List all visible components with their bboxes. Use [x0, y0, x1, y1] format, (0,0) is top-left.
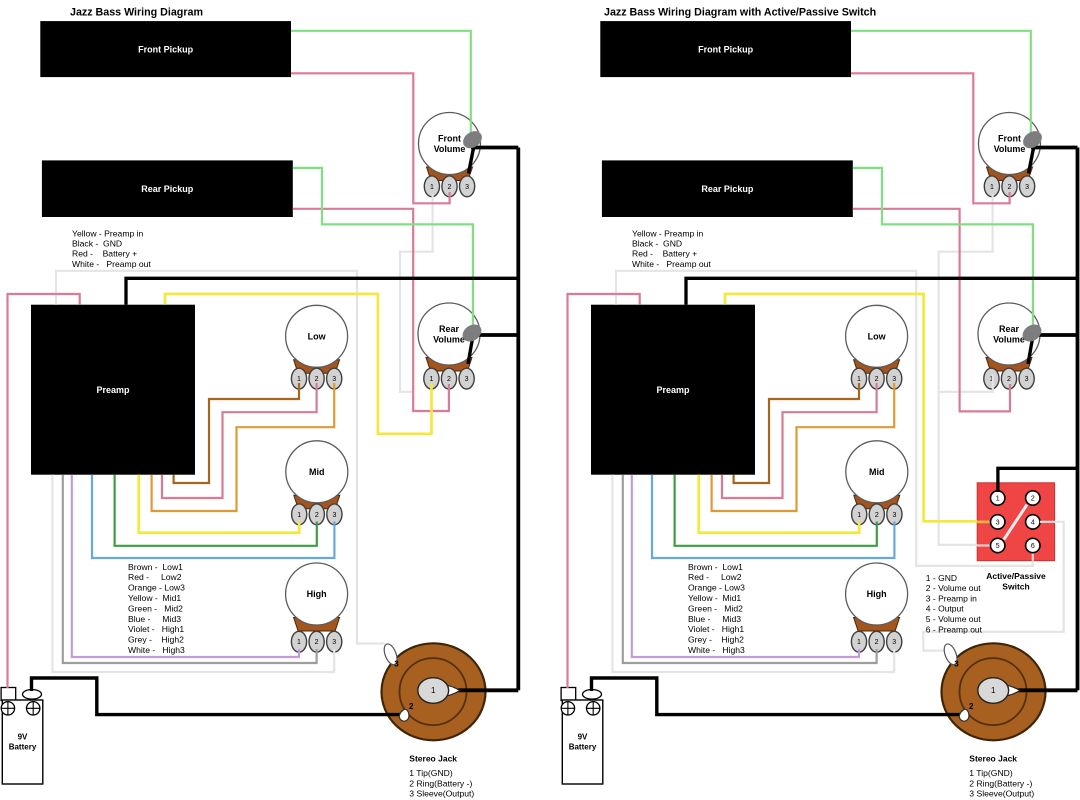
svg-text:1: 1	[431, 686, 436, 695]
svg-text:3: 3	[332, 639, 336, 646]
svg-text:Green - Mid2: Green - Mid2	[128, 603, 183, 613]
svg-text:1: 1	[430, 184, 434, 191]
svg-text:3: 3	[954, 660, 959, 669]
svg-text:Black - GND: Black - GND	[72, 239, 122, 249]
svg-text:Yellow - Mid1: Yellow - Mid1	[128, 593, 181, 603]
svg-text:9V: 9V	[18, 732, 28, 741]
svg-text:2: 2	[448, 184, 452, 191]
svg-text:Stereo Jack: Stereo Jack	[409, 753, 457, 763]
svg-text:2: 2	[315, 376, 319, 383]
svg-text:White - Preamp out: White - Preamp out	[632, 259, 711, 269]
svg-text:3: 3	[465, 376, 469, 383]
svg-text:Red - Battery +: Red - Battery +	[72, 249, 137, 259]
svg-text:Red - Low2: Red - Low2	[688, 572, 742, 582]
svg-text:Green - Mid2: Green - Mid2	[688, 603, 743, 613]
svg-text:3: 3	[892, 376, 896, 383]
svg-text:3: 3	[394, 660, 399, 669]
svg-text:Preamp: Preamp	[656, 385, 690, 395]
svg-text:3: 3	[465, 184, 469, 191]
svg-text:Mid: Mid	[869, 467, 885, 477]
svg-text:Yellow - Mid1: Yellow - Mid1	[688, 593, 741, 603]
svg-text:White - Preamp out: White - Preamp out	[72, 259, 151, 269]
svg-text:Low: Low	[308, 332, 327, 342]
svg-text:3 Sleeve(Output): 3 Sleeve(Output)	[969, 788, 1034, 798]
svg-text:Yellow - Preamp in: Yellow - Preamp in	[72, 228, 144, 238]
svg-text:1: 1	[857, 639, 861, 646]
svg-text:Orange - Low3: Orange - Low3	[688, 583, 745, 593]
svg-text:Switch: Switch	[1002, 582, 1029, 592]
svg-text:2: 2	[447, 376, 451, 383]
svg-text:Brown - Low1: Brown - Low1	[128, 562, 183, 572]
svg-text:1: 1	[297, 376, 301, 383]
svg-text:Rear Pickup: Rear Pickup	[141, 184, 194, 194]
svg-text:Front Pickup: Front Pickup	[138, 44, 194, 54]
svg-text:Mid: Mid	[309, 467, 325, 477]
svg-text:Rear: Rear	[999, 324, 1020, 334]
svg-text:1: 1	[990, 184, 994, 191]
svg-text:2 - Volume out: 2 - Volume out	[926, 583, 981, 593]
svg-text:9V: 9V	[578, 732, 588, 741]
svg-text:White - High3: White - High3	[688, 645, 745, 655]
svg-text:2 Ring(Battery -): 2 Ring(Battery -)	[409, 778, 472, 788]
svg-text:Volume: Volume	[993, 334, 1025, 344]
svg-text:Blue - Mid3: Blue - Mid3	[128, 614, 181, 624]
svg-text:Stereo Jack: Stereo Jack	[969, 753, 1017, 763]
svg-text:2: 2	[875, 376, 879, 383]
svg-text:Violet - High1: Violet - High1	[128, 624, 184, 634]
svg-text:3: 3	[1025, 376, 1029, 383]
svg-text:Rear Pickup: Rear Pickup	[701, 184, 754, 194]
svg-text:3 Sleeve(Output): 3 Sleeve(Output)	[409, 788, 474, 798]
svg-text:Volume: Volume	[433, 334, 465, 344]
svg-text:Blue - Mid3: Blue - Mid3	[688, 614, 741, 624]
svg-text:Front: Front	[998, 133, 1021, 143]
svg-text:6 - Preamp out: 6 - Preamp out	[926, 624, 983, 634]
svg-text:3: 3	[332, 376, 336, 383]
svg-text:1 Tip(GND): 1 Tip(GND)	[409, 768, 453, 778]
svg-text:1: 1	[857, 512, 861, 519]
svg-text:Low: Low	[868, 332, 887, 342]
svg-text:White - High3: White - High3	[128, 645, 185, 655]
svg-text:2: 2	[1008, 184, 1012, 191]
svg-text:Violet - High1: Violet - High1	[688, 624, 744, 634]
svg-text:1: 1	[991, 686, 996, 695]
svg-text:3: 3	[892, 512, 896, 519]
svg-text:Active/Passive: Active/Passive	[986, 571, 1046, 581]
svg-text:1: 1	[996, 496, 1000, 503]
svg-text:3 - Preamp in: 3 - Preamp in	[926, 593, 977, 603]
svg-text:Red - Low2: Red - Low2	[128, 572, 182, 582]
svg-text:2: 2	[315, 512, 319, 519]
svg-text:Preamp: Preamp	[96, 385, 130, 395]
svg-text:Brown - Low1: Brown - Low1	[688, 562, 743, 572]
svg-text:Jazz Bass Wiring Diagram: Jazz Bass Wiring Diagram	[70, 7, 203, 19]
svg-text:2: 2	[315, 639, 319, 646]
svg-text:6: 6	[1031, 543, 1035, 550]
svg-text:Grey - High2: Grey - High2	[128, 635, 184, 645]
svg-text:2: 2	[409, 702, 414, 711]
svg-text:Rear: Rear	[439, 324, 460, 334]
svg-text:1: 1	[297, 512, 301, 519]
svg-text:1: 1	[297, 639, 301, 646]
svg-text:Battery: Battery	[569, 743, 597, 752]
svg-text:3: 3	[996, 520, 1000, 527]
svg-text:2: 2	[875, 639, 879, 646]
svg-text:1 - GND: 1 - GND	[926, 573, 957, 583]
svg-text:Jazz Bass Wiring Diagram with: Jazz Bass Wiring Diagram with Active/Pas…	[604, 7, 876, 19]
svg-text:3: 3	[892, 639, 896, 646]
svg-text:3: 3	[1025, 184, 1029, 191]
svg-text:Yellow - Preamp in: Yellow - Preamp in	[632, 228, 704, 238]
svg-text:Volume: Volume	[434, 144, 466, 154]
svg-text:Black - GND: Black - GND	[632, 239, 682, 249]
svg-text:1: 1	[857, 376, 861, 383]
svg-text:1 Tip(GND): 1 Tip(GND)	[969, 768, 1013, 778]
svg-text:Grey - High2: Grey - High2	[688, 635, 744, 645]
svg-text:2: 2	[1007, 376, 1011, 383]
svg-text:Front: Front	[438, 133, 461, 143]
svg-text:4 - Output: 4 - Output	[926, 604, 964, 614]
svg-text:High: High	[867, 589, 887, 599]
svg-text:Battery: Battery	[9, 743, 37, 752]
svg-text:5: 5	[996, 543, 1000, 550]
svg-text:2: 2	[969, 702, 974, 711]
svg-text:4: 4	[1031, 520, 1035, 527]
svg-text:2: 2	[1031, 496, 1035, 503]
svg-text:2 Ring(Battery -): 2 Ring(Battery -)	[969, 778, 1032, 788]
svg-text:1: 1	[429, 376, 433, 383]
svg-text:Red - Battery +: Red - Battery +	[632, 249, 697, 259]
svg-text:2: 2	[875, 512, 879, 519]
svg-text:3: 3	[332, 512, 336, 519]
svg-text:Orange - Low3: Orange - Low3	[128, 583, 185, 593]
svg-text:High: High	[307, 589, 327, 599]
svg-text:Volume: Volume	[994, 144, 1026, 154]
svg-text:5 - Volume out: 5 - Volume out	[926, 614, 981, 624]
svg-text:Front Pickup: Front Pickup	[698, 44, 754, 54]
